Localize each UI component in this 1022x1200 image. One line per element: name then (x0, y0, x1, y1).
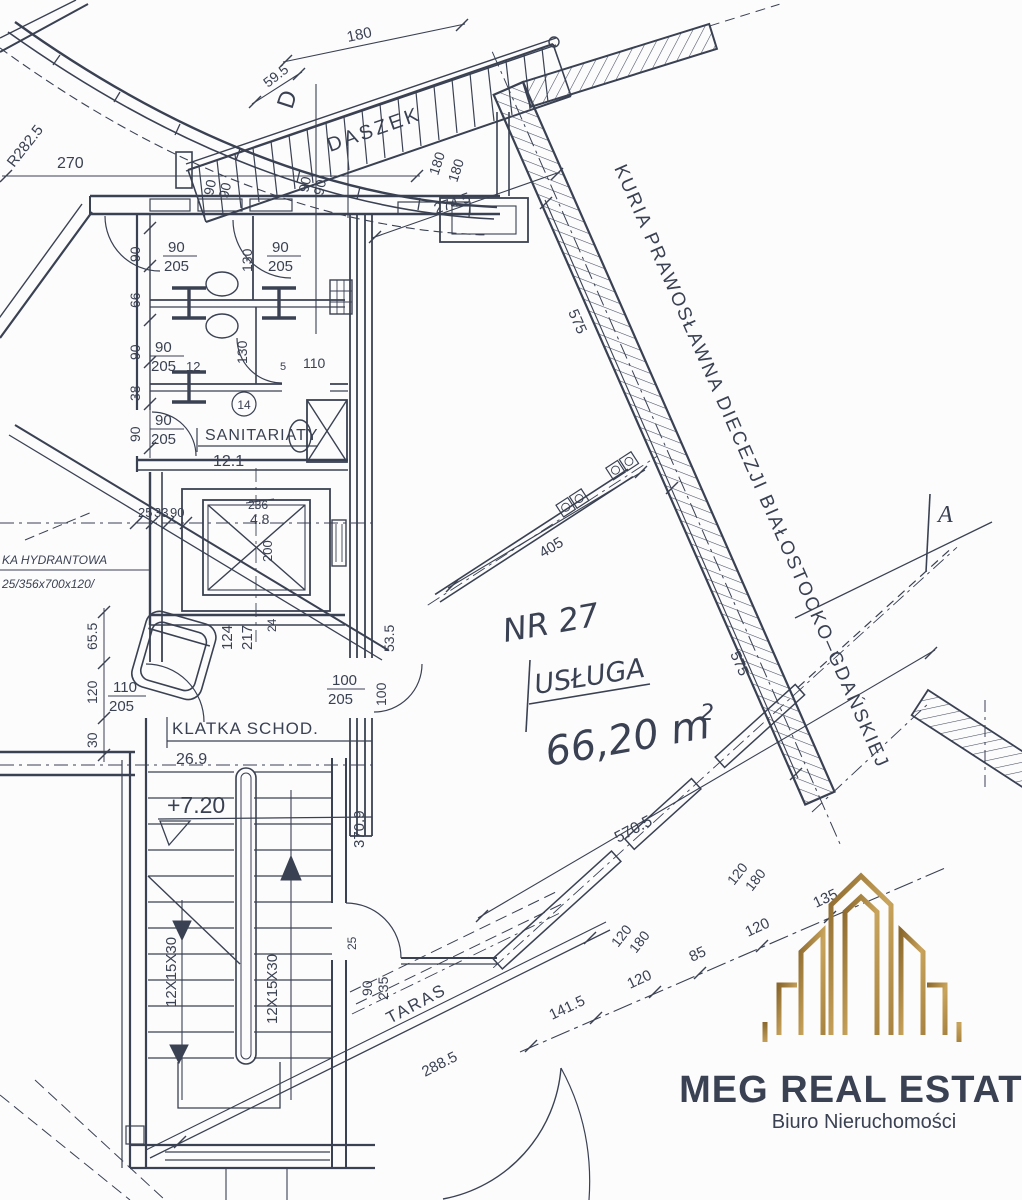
dim-4-8: 4.8 (250, 511, 270, 527)
dim-570-5: 570.5 (612, 813, 655, 847)
svg-text:90: 90 (155, 412, 172, 429)
dim-85: 85 (687, 943, 709, 965)
dim-30: 30 (84, 732, 100, 748)
svg-text:SANITARIATY: SANITARIATY (205, 427, 319, 444)
dim-180: 180 (345, 24, 373, 46)
chair-icon (129, 608, 220, 703)
door-label-90-205-2: 90 205 (267, 239, 301, 275)
svg-text:205: 205 (268, 258, 293, 275)
floor-plan-page: R282.5 270 (0, 0, 1022, 1200)
dim-38: 38 (127, 385, 143, 401)
logo-subtitle: Biuro Nieruchomości (772, 1111, 957, 1133)
svg-text:205: 205 (109, 698, 134, 715)
svg-text:25/356x700x120/: 25/356x700x120/ (1, 577, 96, 591)
room-label-area: 66,20 m (542, 702, 714, 776)
svg-text:205: 205 (151, 358, 176, 375)
dim-236: 236 (248, 498, 268, 512)
door-label-100-205: 100 205 (327, 672, 365, 708)
dim-270: 270 (57, 155, 84, 172)
dim-405: 405 (536, 534, 566, 561)
dim-5: 5 (280, 361, 286, 373)
dim-90: 90 (359, 980, 375, 996)
dim-90: 90 (127, 344, 143, 360)
dim-14: 14 (237, 398, 251, 412)
stairwell (0, 718, 497, 1200)
dim-124: 124 (219, 625, 236, 650)
svg-text:205: 205 (328, 691, 353, 708)
dim-370-9: 370.9 (351, 810, 368, 848)
dim-180: 180 (445, 157, 468, 184)
dim-110: 110 (303, 355, 326, 371)
room-label-klatka: KLATKA SCHOD. 26.9 (167, 717, 372, 768)
dim-130: 130 (234, 340, 250, 364)
dim-100: 100 (373, 682, 389, 706)
dim-25: 25 (345, 936, 359, 950)
dim-90: 90 (127, 246, 143, 262)
level-marker: +7.20 (158, 792, 372, 845)
dim-180: 180 (426, 150, 449, 177)
dim-120: 120 (84, 680, 100, 704)
room-label-taras: TARAS (383, 980, 450, 1027)
room-label-nr27: NR 27 (500, 595, 603, 649)
svg-text:110: 110 (113, 679, 137, 696)
dim-66: 66 (127, 292, 143, 308)
svg-text:+7.20: +7.20 (167, 792, 225, 818)
dim-25: 25 (138, 505, 152, 520)
dim-radius: R282.5 (4, 122, 47, 171)
svg-text:12.1: 12.1 (213, 453, 244, 470)
svg-text:90: 90 (168, 239, 185, 256)
svg-text:90: 90 (155, 339, 172, 356)
section-marker-d: D (272, 87, 303, 112)
dim-130: 130 (239, 248, 255, 272)
dim-59-5: 59.5 (260, 61, 291, 91)
svg-text:205: 205 (151, 431, 176, 448)
svg-text:KLATKA SCHOD.: KLATKA SCHOD. (172, 719, 319, 738)
dim-24: 24 (265, 618, 279, 632)
dim-120: 120 (625, 967, 655, 993)
floor-plan-svg: R282.5 270 (0, 0, 1022, 1200)
logo: MEG REAL ESTATE Biuro Nieruchomości (679, 876, 1022, 1133)
dim-141-5: 141.5 (547, 992, 588, 1023)
svg-text:KA HYDRANTOWA: KA HYDRANTOWA (2, 553, 107, 567)
dim-288-5: 288.5 (419, 1048, 460, 1080)
dim-90: 90 (170, 505, 184, 520)
dim-65-5: 65.5 (84, 623, 100, 650)
dim-575: 575 (564, 307, 590, 337)
svg-text:100: 100 (332, 672, 357, 689)
stairs-spec: 12X15X30 (264, 954, 281, 1024)
section-marker-a: A (936, 502, 953, 528)
dim-217: 217 (239, 625, 256, 650)
dim-200: 200 (260, 540, 275, 562)
dim-53-5: 53.5 (381, 625, 397, 652)
unit-labels: NR 27 USŁUGA 66,20 m 2 (500, 595, 714, 775)
dim-33: 33 (154, 505, 168, 520)
door-label-110-205: 110 205 (108, 679, 146, 715)
canopy-daszek (176, 37, 571, 334)
room-label-area-sup: 2 (700, 701, 714, 726)
dim-180-top (280, 19, 468, 67)
svg-text:26.9: 26.9 (176, 751, 207, 768)
door-label-90-205-3: 90 205 12 (150, 339, 200, 375)
stairs-spec: 12X15X30 (163, 937, 180, 1007)
door-label-90-205-1: 90 205 (163, 239, 197, 275)
svg-text:90: 90 (272, 239, 289, 256)
dim-120: 120 (743, 915, 773, 941)
dim-90: 90 (127, 426, 143, 442)
svg-text:205: 205 (164, 258, 189, 275)
logo-buildings-icon (765, 876, 959, 1042)
logo-title: MEG REAL ESTATE (679, 1069, 1022, 1111)
section-a-marker (795, 494, 992, 618)
door-label-90-205-4: 90 205 (150, 412, 184, 448)
hydrant-note: KA HYDRANTOWA 25/356x700x120/ (0, 512, 150, 591)
dim-12: 12 (186, 359, 200, 374)
room-label-sanitariaty: SANITARIATY 12.1 (197, 427, 319, 470)
